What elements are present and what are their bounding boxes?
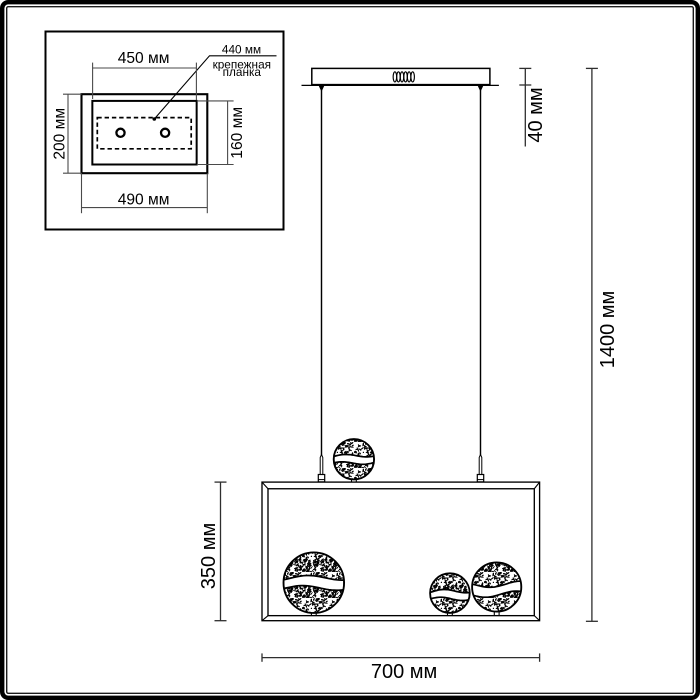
svg-text:350 мм: 350 мм xyxy=(198,523,220,589)
svg-text:490 мм: 490 мм xyxy=(118,191,170,208)
svg-text:1400 мм: 1400 мм xyxy=(597,291,619,369)
svg-text:40 мм: 40 мм xyxy=(525,87,547,142)
svg-text:200 мм: 200 мм xyxy=(52,108,69,160)
svg-text:440 мм: 440 мм xyxy=(222,42,261,56)
svg-text:700 мм: 700 мм xyxy=(371,661,437,683)
svg-text:планка: планка xyxy=(223,65,262,79)
svg-text:450 мм: 450 мм xyxy=(118,50,170,67)
svg-text:160 мм: 160 мм xyxy=(229,107,246,159)
